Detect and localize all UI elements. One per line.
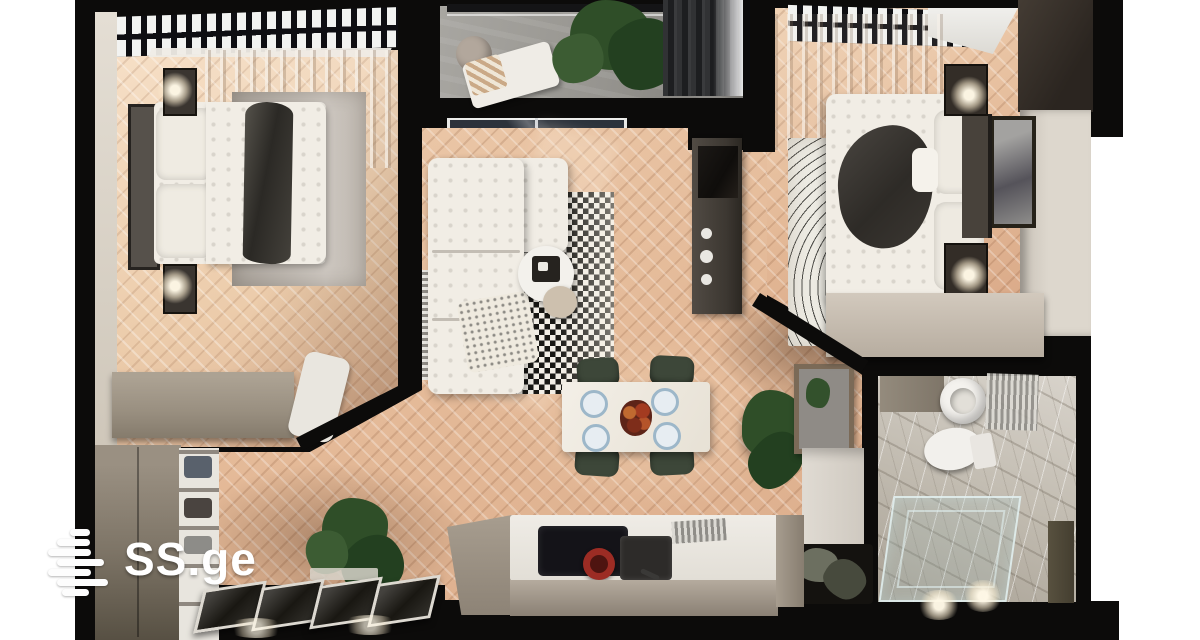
sofa-throw-blanket bbox=[456, 290, 539, 373]
ss-ge-logo-bar bbox=[57, 579, 108, 586]
frame-floor-light bbox=[340, 615, 400, 635]
red-pot-inner bbox=[590, 555, 608, 573]
nightstand-lamp-glow bbox=[157, 72, 193, 108]
shower-floor-light bbox=[916, 590, 962, 620]
dish-rack bbox=[671, 518, 726, 544]
bathroom-vanity-counter bbox=[880, 376, 944, 412]
bed-left-runner-blanket bbox=[243, 102, 294, 265]
watermark-text: SS.ge bbox=[124, 532, 257, 586]
ss-ge-logo-bar bbox=[57, 539, 90, 546]
bed-right-pillow-small bbox=[912, 148, 938, 192]
wall-art-frame bbox=[990, 116, 1036, 228]
console-vase bbox=[701, 228, 712, 239]
shelf-clothes-item bbox=[184, 456, 212, 478]
bed-left-pillow bbox=[156, 108, 212, 180]
balcony-bedroom-divider-wall bbox=[743, 0, 775, 152]
console-vase bbox=[701, 274, 712, 285]
ss-ge-logo-bar bbox=[70, 529, 90, 536]
ss-ge-logo-bar bbox=[57, 559, 104, 566]
nightstand-lamp-glow bbox=[950, 76, 988, 114]
tv-screen bbox=[698, 146, 738, 198]
dining-plate bbox=[582, 424, 610, 452]
bedroom-right-dresser bbox=[826, 293, 1044, 357]
dining-plate bbox=[653, 422, 681, 450]
kitchen-counter-front bbox=[510, 580, 778, 616]
ss-ge-logo-bar bbox=[48, 569, 91, 576]
hall-console-white bbox=[802, 448, 864, 548]
dining-plate bbox=[651, 388, 679, 416]
ss-ge-logo-bar bbox=[48, 549, 91, 556]
shelf-clothes-item bbox=[184, 498, 212, 518]
balcony-window-light bbox=[713, 0, 745, 96]
nightstand-lamp-glow bbox=[157, 268, 193, 304]
frame-floor-light bbox=[226, 618, 286, 638]
sofa-cushion-seam bbox=[432, 250, 520, 253]
coffee-table-tray-item bbox=[538, 262, 548, 271]
dining-plate bbox=[580, 390, 608, 418]
bathroom-basin-bowl bbox=[950, 388, 976, 414]
nightstand-lamp-glow bbox=[950, 256, 988, 294]
bed-right-headboard bbox=[962, 114, 992, 238]
ottoman bbox=[543, 286, 577, 318]
mirror-plant-reflection bbox=[806, 378, 830, 408]
wall-mirror bbox=[794, 364, 854, 454]
console-vase bbox=[700, 250, 713, 263]
shower-glass-inner-panel bbox=[897, 510, 1006, 588]
bed-left-pillow bbox=[156, 184, 212, 258]
kitchen-counter-right bbox=[776, 515, 804, 607]
shower-floor-light bbox=[962, 580, 1004, 612]
ss-ge-logo-bar bbox=[62, 589, 89, 596]
bathroom-door bbox=[1048, 521, 1074, 603]
bedroom-right-dark-wall bbox=[1018, 0, 1093, 112]
apartment-floorplan-render: SS.ge bbox=[0, 0, 1200, 640]
bathroom-radiator bbox=[985, 373, 1039, 431]
bedroom-left-desk bbox=[112, 372, 294, 438]
